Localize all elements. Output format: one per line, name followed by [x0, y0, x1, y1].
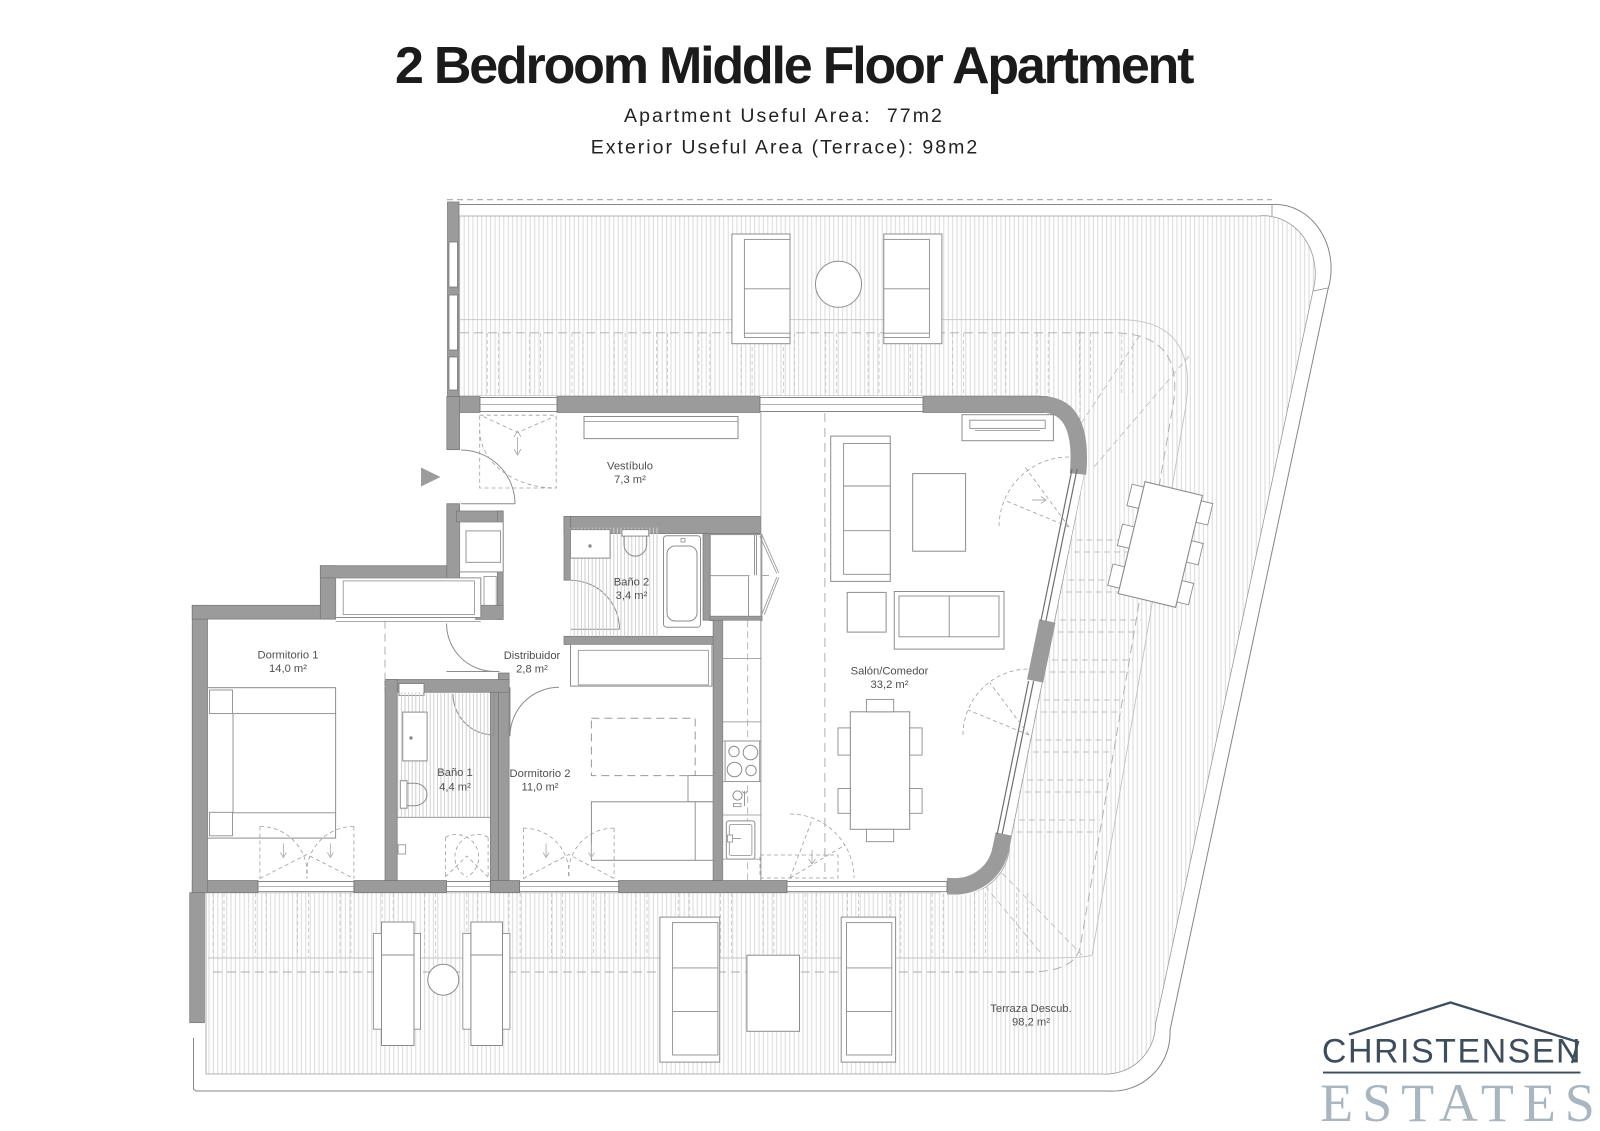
svg-text:33,2 m²: 33,2 m² — [871, 679, 909, 691]
svg-text:98,2 m²: 98,2 m² — [1012, 1017, 1050, 1029]
svg-text:7,3 m²: 7,3 m² — [614, 474, 646, 486]
svg-text:Terraza Descub.: Terraza Descub. — [990, 1003, 1071, 1015]
svg-text:CHRISTENSEN: CHRISTENSEN — [1322, 1033, 1582, 1071]
svg-text:2,8 m²: 2,8 m² — [516, 664, 548, 676]
svg-text:Dormitorio 1: Dormitorio 1 — [258, 650, 319, 662]
svg-text:Exterior Useful Area (Terrace): Exterior Useful Area (Terrace): 98m2 — [591, 137, 979, 159]
svg-text:4,4 m²: 4,4 m² — [439, 782, 471, 794]
svg-text:Baño 1: Baño 1 — [437, 767, 472, 779]
svg-text:Dormitorio 2: Dormitorio 2 — [510, 768, 571, 780]
svg-text:14,0 m²: 14,0 m² — [269, 663, 307, 675]
svg-text:Apartment Useful Area: 77m2: Apartment Useful Area: 77m2 — [624, 105, 944, 127]
svg-text:Vestíbulo: Vestíbulo — [607, 461, 653, 473]
svg-text:ESTATES: ESTATES — [1320, 1073, 1600, 1131]
svg-text:11,0 m²: 11,0 m² — [521, 782, 558, 794]
svg-text:Distribuidor: Distribuidor — [504, 650, 561, 662]
svg-text:Salón/Comedor: Salón/Comedor — [851, 666, 929, 678]
svg-text:Baño 2: Baño 2 — [614, 577, 649, 589]
svg-text:2 Bedroom Middle Floor Apartme: 2 Bedroom Middle Floor Apartment — [395, 37, 1194, 95]
svg-text:3,4 m²: 3,4 m² — [616, 590, 648, 602]
